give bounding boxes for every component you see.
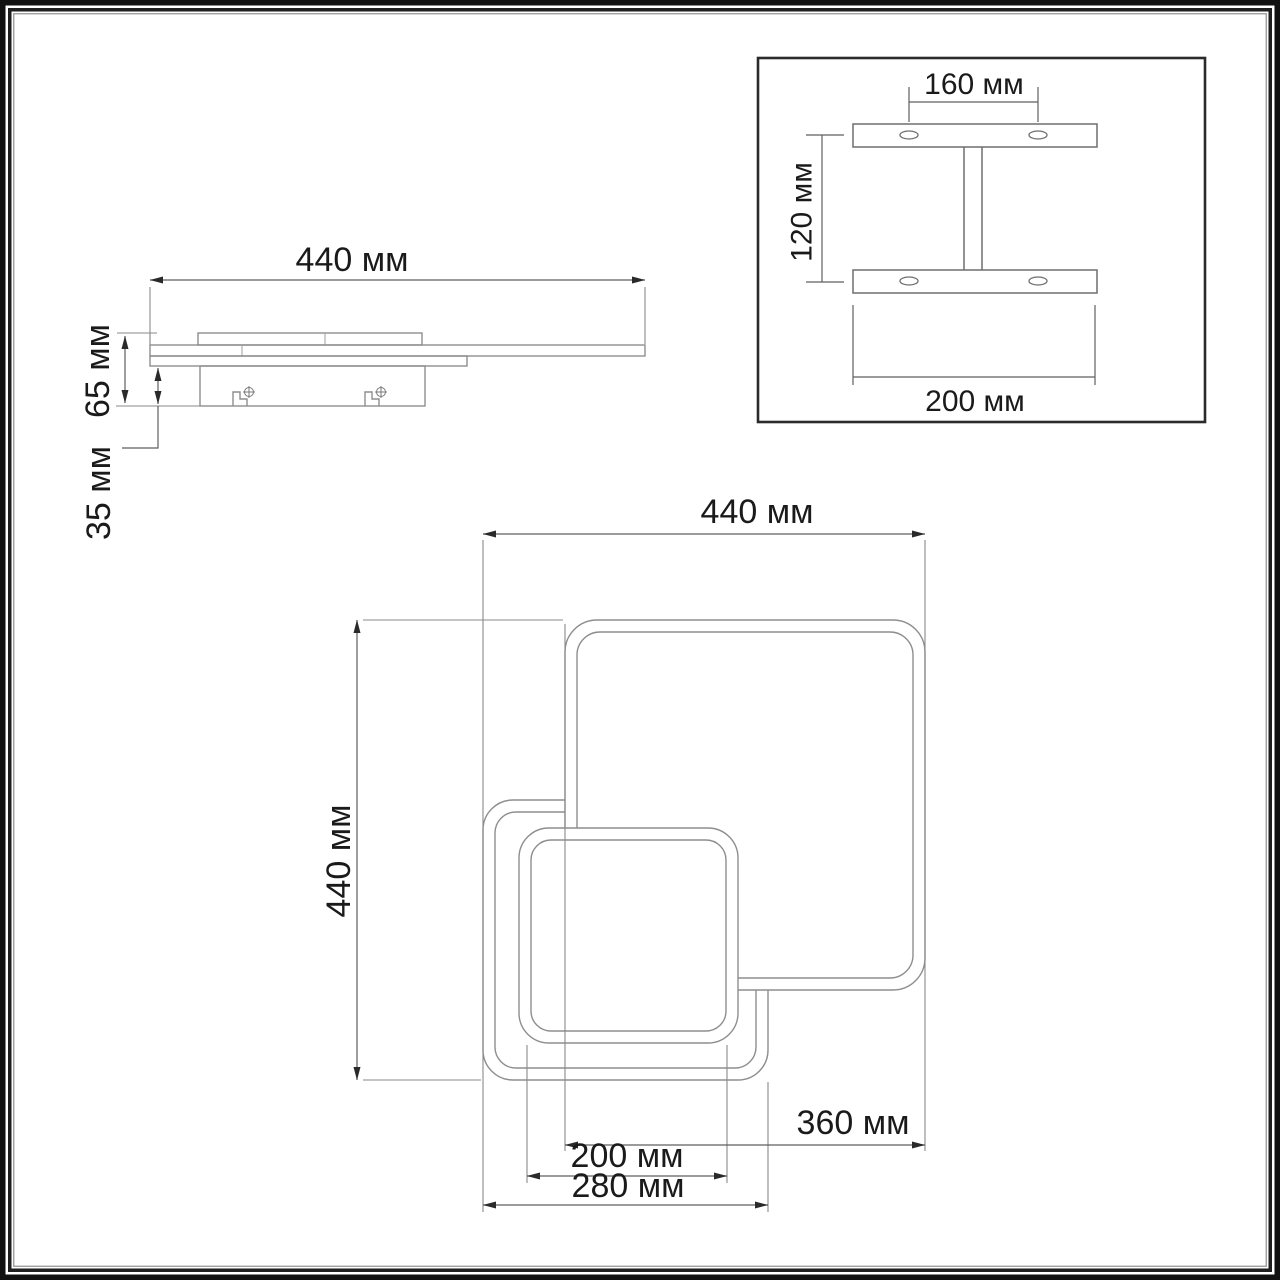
side-main-panel [150, 345, 645, 356]
side-top-plate [198, 333, 422, 345]
plan-view: 440 мм 440 мм 360 мм 200 мм 280 мм [320, 493, 925, 1212]
bracket-hole-spacing-label: 160 мм [924, 68, 1024, 101]
side-width-dimension: 440 мм [150, 241, 645, 344]
bracket-top-bar [853, 124, 1097, 147]
plan-large-square-label: 360 мм [797, 1104, 910, 1142]
bracket-width-label: 200 мм [925, 385, 1025, 418]
bracket-height-label: 120 мм [786, 162, 819, 262]
drawing-sheet: 440 мм 65 мм 35 мм [0, 0, 1280, 1280]
plan-medium-square-label: 280 мм [572, 1167, 685, 1205]
side-view: 440 мм 65 мм 35 мм [79, 241, 645, 540]
bracket-detail-view: 160 мм 120 мм 200 мм [758, 58, 1205, 422]
side-height-label: 65 мм [79, 324, 117, 418]
plan-width-dimension: 440 мм [483, 493, 925, 534]
side-mounting-box [200, 366, 425, 406]
plan-height-label: 440 мм [320, 805, 358, 918]
mounting-hole [1029, 131, 1047, 139]
small-square [519, 828, 738, 1043]
plan-medium-square-dimension: 280 мм [483, 1167, 768, 1205]
mounting-hole [1029, 277, 1047, 285]
side-bottom-plate [150, 356, 467, 366]
bracket-bottom-bar [853, 270, 1097, 293]
mounting-hole [900, 131, 918, 139]
side-height-dimension: 65 мм [79, 324, 200, 418]
side-base-label: 35 мм [80, 446, 118, 540]
plan-width-label: 440 мм [701, 493, 814, 531]
mounting-clip-right [365, 386, 387, 406]
side-width-label: 440 мм [296, 241, 409, 279]
mounting-clip-left [233, 386, 255, 406]
technical-drawing: 440 мм 65 мм 35 мм [0, 0, 1280, 1280]
mounting-hole [900, 277, 918, 285]
